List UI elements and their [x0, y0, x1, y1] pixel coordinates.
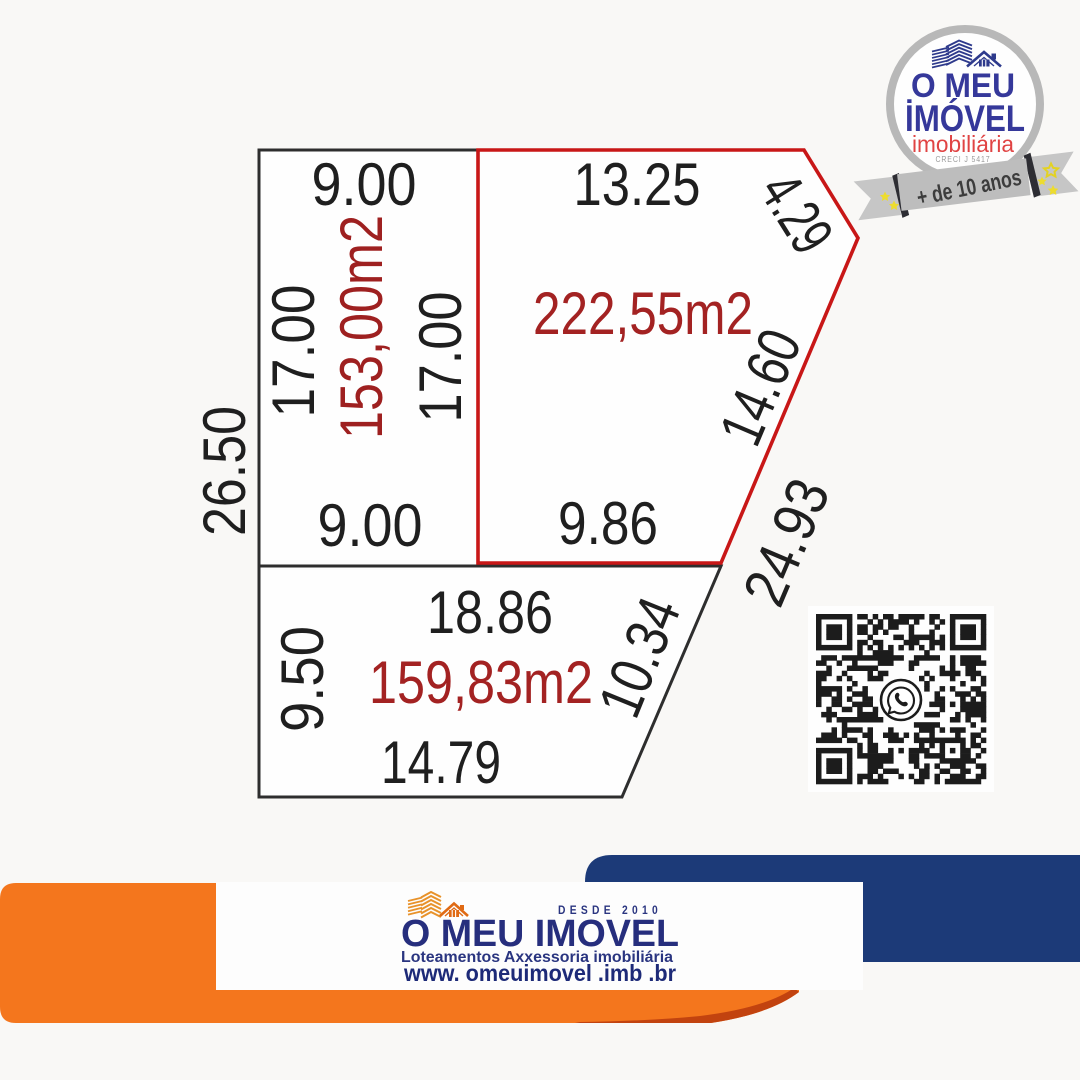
svg-text:153,00m2: 153,00m2 — [328, 215, 395, 439]
svg-text:9.00: 9.00 — [312, 151, 417, 218]
svg-text:26.50: 26.50 — [191, 406, 258, 536]
svg-text:13.25: 13.25 — [574, 151, 701, 218]
svg-text:www. omeuimovel .imb .br: www. omeuimovel .imb .br — [403, 960, 676, 986]
svg-text:17.00: 17.00 — [407, 292, 474, 423]
svg-text:9.86: 9.86 — [558, 490, 658, 557]
svg-text:159,83m2: 159,83m2 — [369, 649, 593, 716]
svg-text:17.00: 17.00 — [260, 285, 327, 418]
svg-text:14.79: 14.79 — [381, 729, 501, 796]
svg-text:CRECI J 5417: CRECI J 5417 — [936, 155, 991, 164]
svg-text:9.00: 9.00 — [318, 492, 423, 559]
svg-text:222,55m2: 222,55m2 — [533, 280, 753, 347]
svg-text:imobiliária: imobiliária — [912, 131, 1014, 157]
svg-text:18.86: 18.86 — [427, 579, 553, 646]
svg-text:9.50: 9.50 — [269, 626, 336, 732]
